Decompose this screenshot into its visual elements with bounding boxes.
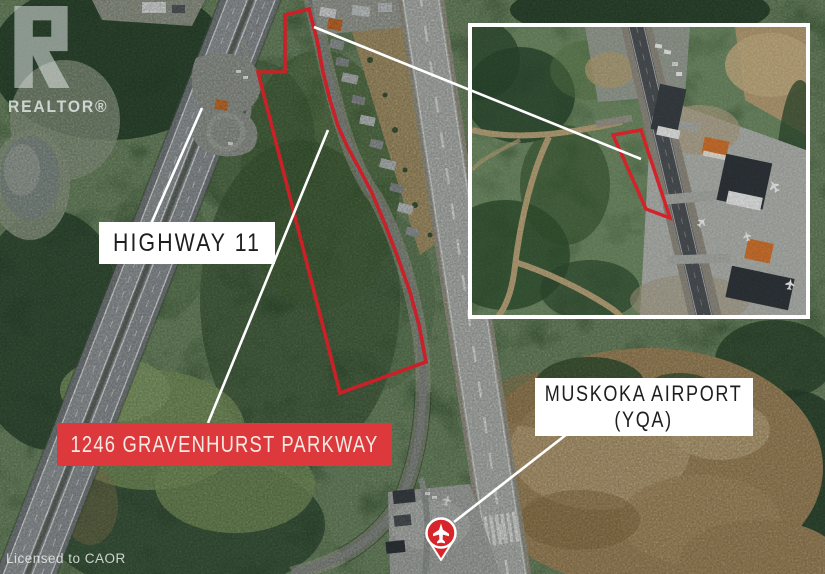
realtor-wordmark: REALTOR®: [8, 97, 148, 117]
listing-map-image: REALTOR® HIGHWAY 11 1246 GRAVENHURST PAR…: [0, 0, 825, 574]
airport-label: MUSKOKA AIRPORT (YQA): [535, 378, 753, 436]
realtor-r-icon: [8, 4, 74, 90]
realtor-logo: REALTOR®: [8, 4, 148, 117]
inset-map: [440, 20, 825, 325]
property-address-label: 1246 GRAVENHURST PARKWAY: [57, 423, 392, 466]
highway-label: HIGHWAY 11: [99, 222, 275, 264]
license-text: Licensed to CAOR: [6, 551, 126, 566]
